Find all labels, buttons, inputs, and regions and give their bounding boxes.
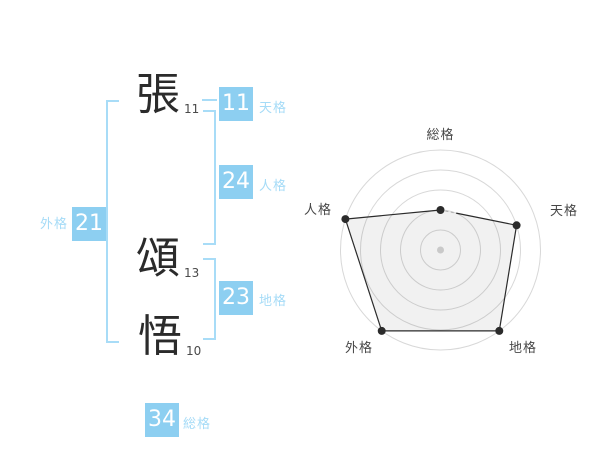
kanji-glyph: 張 xyxy=(136,74,180,116)
radar-chart: 総格 天格 地格 外格 人格 xyxy=(300,110,600,370)
name-character-2: 頌 13 xyxy=(136,238,199,280)
gaikaku-label: 外格 xyxy=(40,213,68,232)
stroke-count: 10 xyxy=(186,345,201,358)
kanji-glyph: 頌 xyxy=(136,238,180,280)
radar-chart-canvas xyxy=(300,110,600,370)
radar-data-point xyxy=(378,327,386,335)
tenkaku-value-badge: 11 xyxy=(219,87,253,121)
jinkaku-bracket xyxy=(203,110,216,245)
radar-data-point xyxy=(495,327,503,335)
radar-data-point xyxy=(341,215,349,223)
name-fortune-panel: 張 11 頌 13 悟 10 11 天格 24 人格 23 地格 21 外格 3… xyxy=(0,0,600,470)
chikaku-label: 地格 xyxy=(259,290,287,309)
gaikaku-bracket xyxy=(106,100,119,343)
chikaku-bracket xyxy=(203,258,216,340)
kanji-glyph: 悟 xyxy=(138,316,182,358)
soukaku-label: 総格 xyxy=(183,413,211,432)
jinkaku-value-badge: 24 xyxy=(219,165,253,199)
radar-axis-label-gaikaku: 外格 xyxy=(345,337,373,356)
stroke-count: 11 xyxy=(184,103,199,116)
stroke-count: 13 xyxy=(184,267,199,280)
radar-axis-label-soukaku: 総格 xyxy=(390,124,491,143)
tenkaku-label: 天格 xyxy=(259,97,287,116)
radar-axis-label-chikaku: 地格 xyxy=(509,337,537,356)
radar-data-point xyxy=(437,206,445,214)
radar-data-point xyxy=(513,221,521,229)
jinkaku-label: 人格 xyxy=(259,175,287,194)
soukaku-value-badge: 34 xyxy=(145,403,179,437)
name-character-3: 悟 10 xyxy=(138,316,201,358)
radar-center-dot xyxy=(437,247,444,254)
chikaku-value-badge: 23 xyxy=(219,281,253,315)
name-character-1: 張 11 xyxy=(136,74,199,116)
radar-area xyxy=(345,210,516,331)
gaikaku-value-badge: 21 xyxy=(72,207,106,241)
radar-axis-label-tenkaku: 天格 xyxy=(550,200,578,219)
tenkaku-tick xyxy=(202,99,217,101)
radar-axis-label-jinkaku: 人格 xyxy=(304,199,332,218)
